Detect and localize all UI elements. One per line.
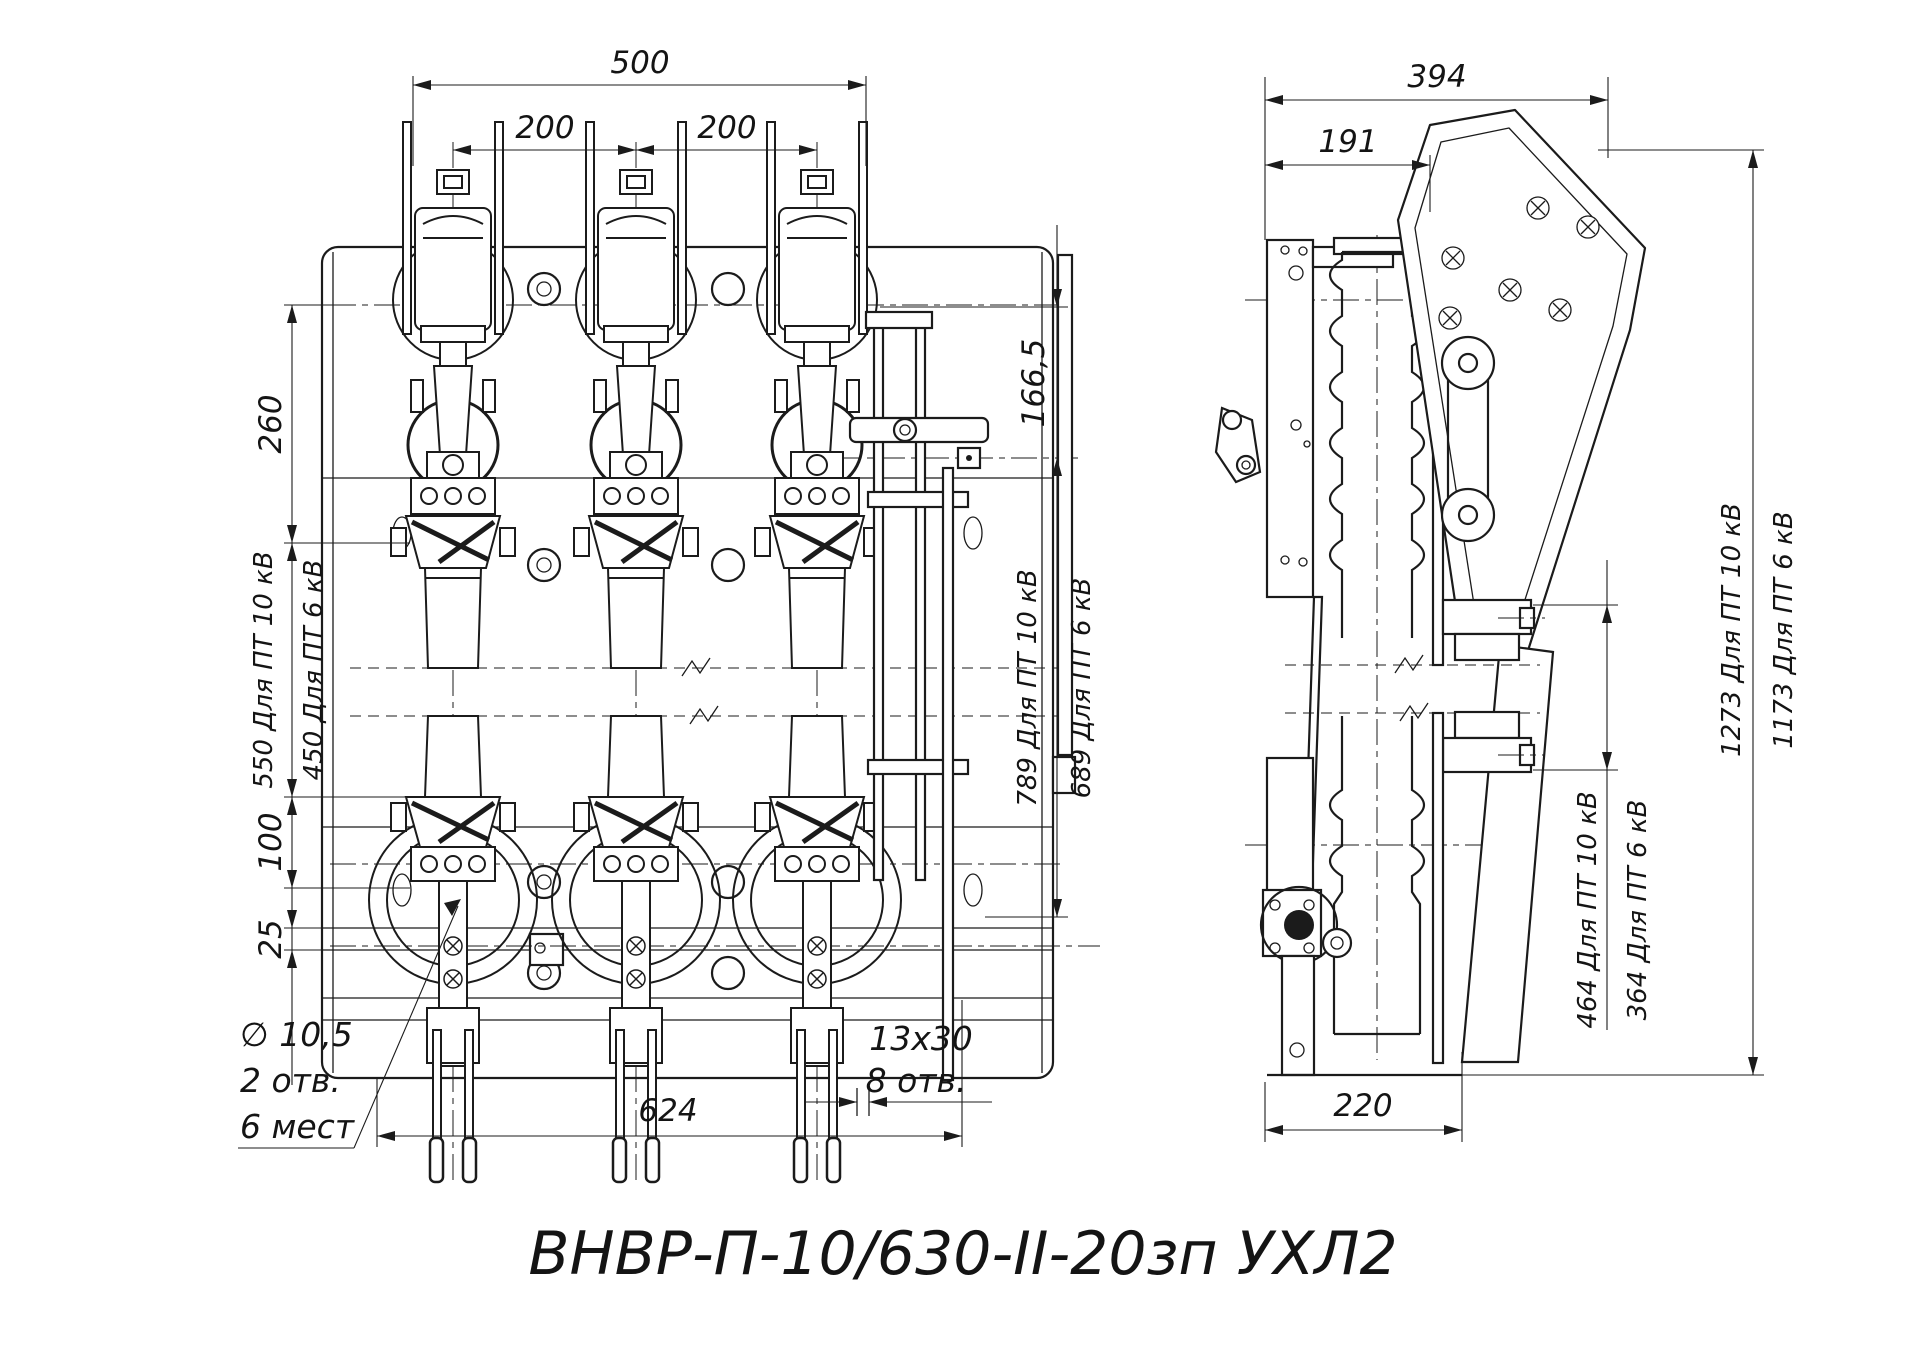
dim-624-label: 624 [638,1093,697,1129]
bell-crank-lever [1216,408,1260,482]
dim-overall-width-label: 500 [610,45,669,81]
dim-789-pt10-label: 789 Для ПТ 10 кВ [1013,569,1043,806]
hole-note-count-label: 2 отв. [240,1061,341,1100]
front-view [322,122,1100,1185]
drawing-title: ВНВР-П-10/630-II-20зп УХЛ2 [528,1219,1397,1289]
technical-drawing: 500 200 200 260 550 Для ПТ 10 кВ 450 Для… [0,0,1920,1357]
hole-note-diameter-label: ∅ 10,5 [240,1015,353,1054]
dim-25-label: 25 [253,919,289,958]
dim-1173-pt6-label: 1173 Для ПТ 6 кВ [1769,511,1799,748]
dim-464-pt10-label: 464 Для ПТ 10 кВ [1573,791,1603,1028]
dim-pitch-left-label: 200 [515,110,574,146]
dim-394-label: 394 [1407,59,1466,95]
dim-191-label: 191 [1318,124,1377,160]
lower-insulator [1330,713,1443,1063]
dim-100-label: 100 [253,812,289,871]
diagonal-arm [1462,645,1553,1062]
lower-bearing-bracket [1261,758,1462,1075]
drawing-sheet: 500 200 200 260 550 Для ПТ 10 кВ 450 Для… [0,0,1920,1357]
dim-689-pt6-label: 689 Для ПТ 6 кВ [1067,578,1097,799]
dim-550-pt10-label: 550 Для ПТ 10 кВ [249,551,279,788]
dim-260-label: 260 [253,394,289,453]
dim-1273-pt10-label: 1273 Для ПТ 10 кВ [1717,503,1747,757]
slot-note-count-label: 8 отв. [866,1061,967,1100]
dim-pitch-right-label: 200 [697,110,756,146]
dim-220-label: 220 [1333,1088,1392,1124]
slot-note-size-label: 13x30 [869,1019,973,1058]
dim-364-pt6-label: 364 Для ПТ 6 кВ [1623,800,1653,1021]
dim-450-pt6-label: 450 Для ПТ 6 кВ [299,560,329,781]
hole-note-places-label: 6 мест [240,1107,356,1146]
dim-166-label: 166,5 [1016,339,1052,428]
